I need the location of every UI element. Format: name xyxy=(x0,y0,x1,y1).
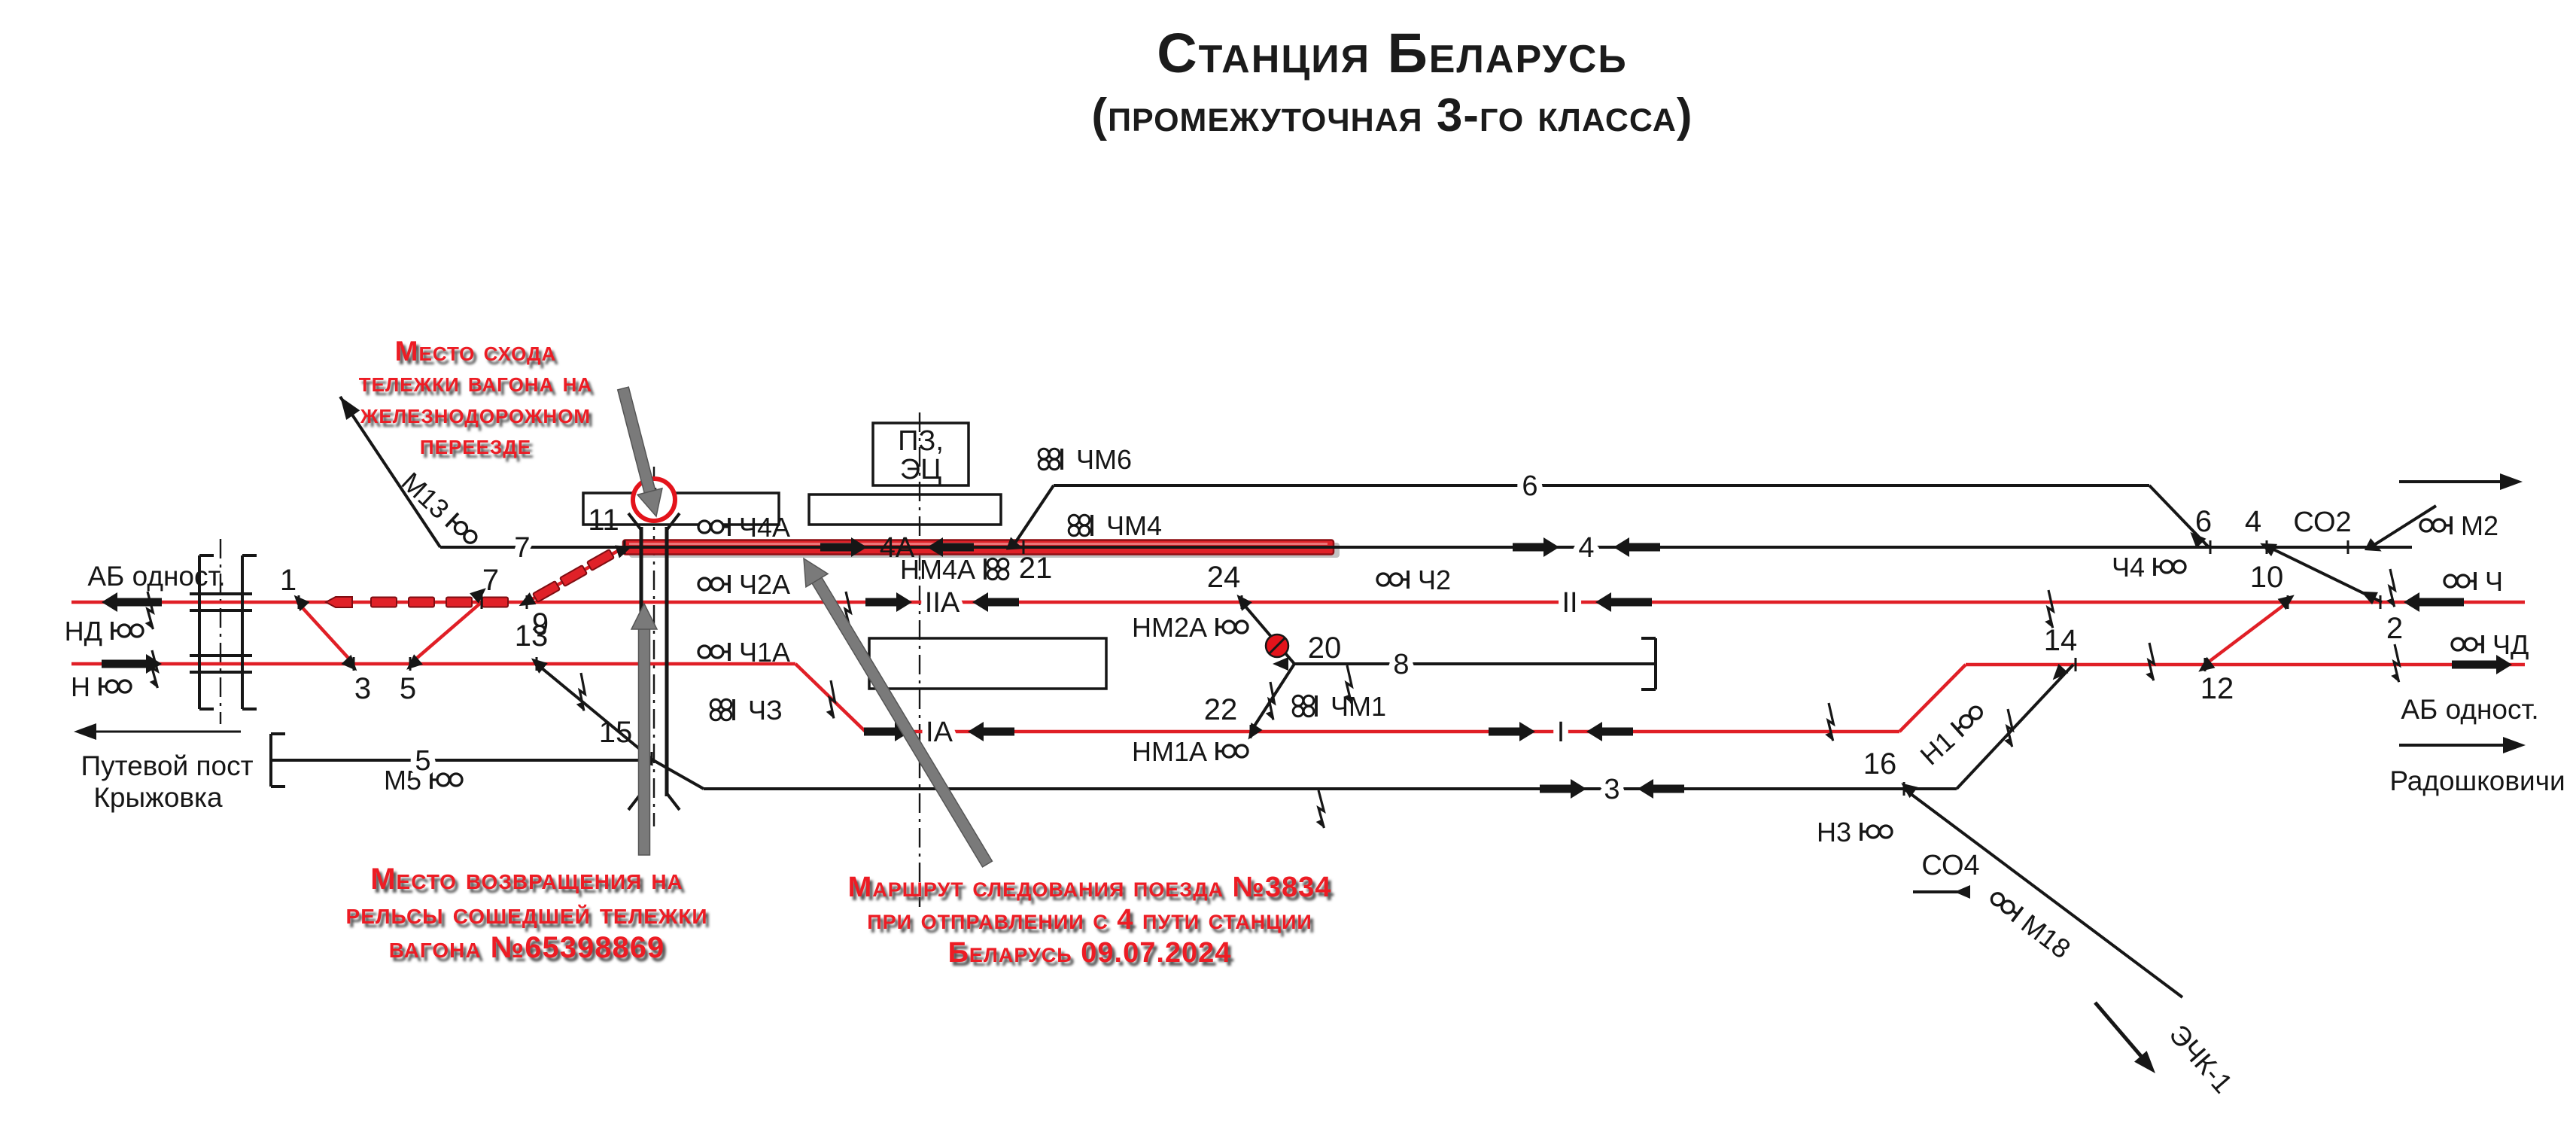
signal-lens xyxy=(2173,561,2185,573)
pointer-arrow-shaft xyxy=(811,575,992,867)
label-13: 13 xyxy=(515,619,549,653)
direction-arrow-shape xyxy=(1489,722,1535,741)
signal-lens xyxy=(1236,621,1248,633)
label-8: 8 xyxy=(1393,649,1409,680)
label-14: 14 xyxy=(2044,624,2078,657)
dwarf-lens xyxy=(710,699,721,710)
signal-label: Ч4 xyxy=(2112,552,2145,583)
signal-lens xyxy=(2420,519,2432,531)
signal-М13: М13 xyxy=(396,466,485,552)
label-II: II xyxy=(1562,587,1577,619)
signal-lens xyxy=(1390,574,1402,586)
signal-Н: Н xyxy=(71,671,131,702)
signal-НМ1А: НМ1А xyxy=(1132,736,1248,767)
dwarf-lens xyxy=(1079,515,1090,525)
dwarf-lens xyxy=(1069,525,1079,536)
joint-lightning xyxy=(572,673,592,711)
route-dash xyxy=(560,565,587,586)
direction-arrow xyxy=(1638,779,1684,799)
signal-label: Н xyxy=(71,671,90,702)
label-СО2: СО2 xyxy=(2293,507,2351,538)
annotation-line: Беларусь 09.07.2024 xyxy=(809,937,1370,969)
signal-label: Ч4А xyxy=(739,512,790,543)
arrowhead xyxy=(2503,737,2526,753)
annotation-line: железнодорожном xyxy=(310,398,641,429)
label-10: 10 xyxy=(2250,561,2284,594)
signal-lens xyxy=(1880,826,1892,838)
signal-label: Н1 xyxy=(1914,725,1960,771)
dwarf-lens xyxy=(998,558,1008,569)
label-ЭЧК-1: ЭЧК-1 xyxy=(2163,1018,2238,1099)
label-11: 11 xyxy=(588,504,619,537)
annotation-line: Место возвращения на xyxy=(277,863,777,897)
signal-ЧМ4: ЧМ4 xyxy=(1069,510,1162,541)
station-name: Станция Беларусь xyxy=(929,20,1855,87)
dwarf-lens xyxy=(1293,695,1303,706)
switch-triangle xyxy=(1954,885,1970,899)
joint-lightning xyxy=(141,592,160,629)
signal-label: ЧМ4 xyxy=(1106,510,1162,541)
label-АБ одност.: АБ одност. xyxy=(2401,694,2538,725)
dwarf-lens xyxy=(1303,695,1314,706)
label-АБ одност.: АБ одност. xyxy=(87,561,225,592)
arrowhead xyxy=(2500,473,2523,490)
dwarf-lens xyxy=(1049,449,1060,459)
dwarf-lens xyxy=(1039,449,1049,459)
annotation-derail-site: Место сходатележки вагона нажелезнодорож… xyxy=(310,336,641,461)
joint-lightning-zigzag xyxy=(572,673,592,711)
signal-lens xyxy=(2452,638,2464,650)
direction-arrow xyxy=(1595,592,1652,612)
dwarf-lens xyxy=(987,558,998,569)
label-Путевой пост: Путевой пост xyxy=(81,750,253,781)
joint-lightning xyxy=(2142,643,2161,680)
dwarf-lens xyxy=(721,699,731,710)
direction-arrow-shape xyxy=(2404,592,2464,612)
signal-label: ЧМ6 xyxy=(1076,444,1132,475)
signal-lens xyxy=(698,578,710,590)
signal-lens xyxy=(711,521,723,533)
dwarf-lens xyxy=(1039,459,1049,470)
signal-lens xyxy=(1236,745,1248,757)
label-СО4: СО4 xyxy=(1921,850,1979,881)
signal-Ч2А: Ч2А xyxy=(698,569,790,600)
signal-lens xyxy=(1223,621,1235,633)
signal-lens xyxy=(131,625,143,637)
signal-Н3: Н3 xyxy=(1817,817,1892,848)
signal-lens xyxy=(119,680,131,692)
label-21: 21 xyxy=(1019,552,1053,585)
label-6: 6 xyxy=(1522,470,1537,502)
route-dash xyxy=(482,598,508,607)
signal-lens xyxy=(437,774,449,786)
direction-arrow-shape xyxy=(972,592,1019,612)
signal-НМ4А: НМ4А xyxy=(900,554,1008,585)
route-dash-seg xyxy=(446,598,472,607)
arrowhead xyxy=(74,723,96,740)
rail-red xyxy=(410,602,482,664)
label-15: 15 xyxy=(599,716,633,749)
annotation-line: рельсы сошедшей тележки xyxy=(277,897,777,932)
rail-black xyxy=(1957,665,2073,789)
label-12: 12 xyxy=(2200,672,2234,705)
joint-lightning xyxy=(1821,703,1841,741)
signal-lens xyxy=(1377,574,1389,586)
dwarf-lens xyxy=(1079,525,1090,536)
dwarf-lens xyxy=(721,710,731,720)
dwarf-lens xyxy=(1303,706,1314,717)
joint-lightning-zigzag xyxy=(822,680,842,718)
signal-label: ЧМ1 xyxy=(1331,691,1386,722)
route-dash xyxy=(446,598,472,607)
dwarf-lens xyxy=(1049,459,1060,470)
switch-triangle xyxy=(1273,657,1288,671)
dwarf-lens xyxy=(1293,706,1303,717)
rail-black xyxy=(667,793,680,810)
label-16: 16 xyxy=(1863,747,1897,781)
signal-lens xyxy=(2161,561,2173,573)
direction-arrow-shape xyxy=(1540,779,1586,799)
station-class: (промежуточная 3-го класса) xyxy=(929,87,1855,145)
route-dash xyxy=(587,549,614,571)
label-3: 3 xyxy=(1604,774,1620,805)
rail-black xyxy=(537,664,653,760)
route-dash xyxy=(409,598,434,607)
direction-arrow xyxy=(1489,722,1535,741)
direction-arrow xyxy=(972,592,1019,612)
label-3: 3 xyxy=(354,672,371,705)
signal-label: ЧД xyxy=(2492,629,2529,660)
signal-lens xyxy=(698,521,710,533)
direction-arrow xyxy=(1613,537,1660,557)
direction-arrow xyxy=(2404,592,2464,612)
label-IА: IА xyxy=(926,717,953,748)
signal-label: Ч xyxy=(2485,566,2503,597)
direction-arrow-shape xyxy=(1586,722,1633,741)
rail-black xyxy=(653,760,704,789)
route-dash-seg xyxy=(371,598,397,607)
direction-arrow-shape xyxy=(968,722,1014,741)
platform xyxy=(869,638,1106,689)
label-7: 7 xyxy=(514,532,530,564)
signal-lens xyxy=(2433,519,2445,531)
direction-arrow xyxy=(968,722,1014,741)
label-5: 5 xyxy=(400,672,416,705)
direction-arrow-shape xyxy=(1513,537,1559,557)
route-dash xyxy=(533,581,560,602)
annotation-line: Маршрут следования поезда №3834 xyxy=(809,872,1370,904)
joint-lightning xyxy=(2041,590,2060,628)
direction-arrow xyxy=(1540,779,1586,799)
signal-Ч: Ч xyxy=(2444,566,2503,597)
dwarf-lens xyxy=(998,569,1008,580)
rail-red xyxy=(2205,602,2288,665)
signal-lens xyxy=(2457,575,2469,587)
rail-red xyxy=(1899,665,1966,732)
route-dash-seg xyxy=(482,598,508,607)
signal-label: Н3 xyxy=(1817,817,1851,848)
signal-lens xyxy=(450,774,462,786)
annotation-train-route: Маршрут следования поезда №3834при отпра… xyxy=(809,872,1370,969)
annotation-line: Место схода xyxy=(310,336,641,367)
annotation-rerail-site: Место возвращения нарельсы сошедшей теле… xyxy=(277,863,777,966)
signal-label: М2 xyxy=(2461,510,2498,541)
signal-label: Ч1А xyxy=(739,637,790,668)
signal-ЧМ6: ЧМ6 xyxy=(1039,444,1132,475)
direction-arrow xyxy=(1586,722,1633,741)
joint-lightning xyxy=(822,680,842,718)
joint-lightning xyxy=(1312,790,1331,828)
rail-black xyxy=(1242,602,1294,664)
label-2: 2 xyxy=(2386,612,2403,645)
platform xyxy=(809,495,1001,525)
post-ec-label: ПЗ, xyxy=(898,425,944,457)
label-5: 5 xyxy=(415,745,430,777)
post-ec-label: ЭЦ xyxy=(900,454,941,485)
page-title: Станция Беларусь (промежуточная 3-го кла… xyxy=(929,20,1855,145)
direction-arrow-shape xyxy=(865,592,912,612)
route-dash-seg xyxy=(533,581,560,602)
signal-lens xyxy=(2465,638,2477,650)
signal-lens xyxy=(711,578,723,590)
signal-lens xyxy=(106,680,118,692)
signal-НД: НД xyxy=(65,616,143,647)
dwarf-lens xyxy=(710,710,721,720)
label-4: 4 xyxy=(1578,532,1594,564)
annotation-line: переезде xyxy=(310,429,641,460)
label-I: I xyxy=(1557,717,1565,748)
label-20: 20 xyxy=(1308,631,1342,665)
label-Радошковичи: Радошковичи xyxy=(2389,765,2565,796)
label-Крыжовка: Крыжовка xyxy=(93,782,223,813)
signal-label: М13 xyxy=(396,466,455,525)
annotation-line: вагона №65398869 xyxy=(277,931,777,966)
signal-М2: М2 xyxy=(2420,510,2498,541)
signal-lens xyxy=(2444,575,2456,587)
label-24: 24 xyxy=(1207,561,1241,594)
route-dash-arrow xyxy=(326,597,352,607)
route-dash xyxy=(371,598,397,607)
signal-Ч2: Ч2 xyxy=(1377,564,1451,595)
annotation-line: тележки вагона на xyxy=(310,367,641,397)
direction-arrow xyxy=(1513,537,1559,557)
direction-arrow xyxy=(865,592,912,612)
label-4: 4 xyxy=(2245,505,2261,538)
signal-ЧЗ: ЧЗ xyxy=(710,695,783,726)
signal-label: НМ1А xyxy=(1132,736,1207,767)
signal-label: НМ2А xyxy=(1132,612,1207,643)
signal-lens xyxy=(118,625,130,637)
dwarf-lens xyxy=(987,569,998,580)
signal-label: М18 xyxy=(2015,908,2076,965)
route-dash-seg xyxy=(409,598,434,607)
label-IIА: IIА xyxy=(925,587,960,619)
label-1: 1 xyxy=(280,564,297,597)
rail-black xyxy=(1012,485,1054,547)
direction-arrow-shape xyxy=(1638,779,1684,799)
label-7: 7 xyxy=(482,564,499,597)
signal-lens xyxy=(1867,826,1879,838)
signal-ЧМ1: ЧМ1 xyxy=(1293,691,1386,722)
signal-label: ЧЗ xyxy=(748,695,783,726)
label-6: 6 xyxy=(2195,505,2212,538)
signal-label: Ч2 xyxy=(1418,564,1451,595)
signal-label: Ч2А xyxy=(739,569,790,600)
dwarf-lens xyxy=(1069,515,1079,525)
station-track-diagram: Станция Беларусь (промежуточная 3-го кла… xyxy=(0,0,2576,1129)
annotation-line: при отправлении с 4 пути станции xyxy=(809,904,1370,936)
signal-Н1: Н1 xyxy=(1914,698,1991,771)
label-4А: 4А xyxy=(880,532,915,564)
label-22: 22 xyxy=(1204,693,1238,726)
signal-lens xyxy=(1223,745,1235,757)
pointer-arrow-shaft xyxy=(639,626,650,855)
signal-ЧД: ЧД xyxy=(2452,629,2529,660)
signal-label: НД xyxy=(65,616,102,647)
route-dash-seg xyxy=(560,565,587,586)
signal-lens xyxy=(698,646,710,658)
signal-lens xyxy=(711,646,723,658)
direction-arrow-shape xyxy=(1613,537,1660,557)
signal-НМ2А: НМ2А xyxy=(1132,612,1248,643)
signal-Ч4: Ч4 xyxy=(2112,552,2185,583)
rail-red xyxy=(297,602,354,664)
route-dash-seg xyxy=(587,549,614,571)
signal-М18: М18 xyxy=(1983,884,2076,964)
direction-arrow-shape xyxy=(1595,592,1652,612)
